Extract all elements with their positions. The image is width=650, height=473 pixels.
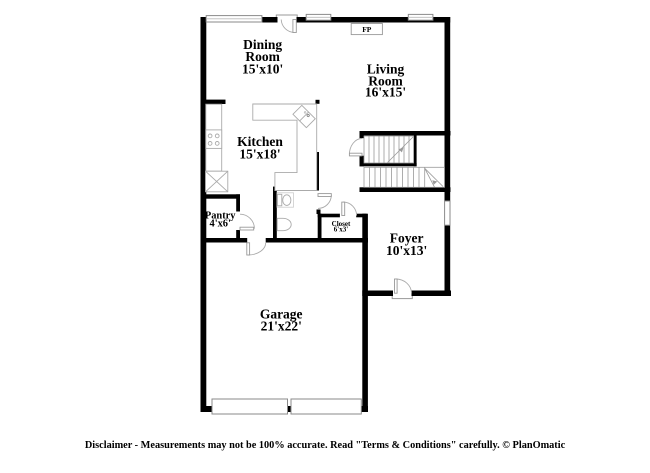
svg-text:16'x15': 16'x15'	[365, 84, 406, 99]
svg-text:Disclaimer - Measurements may: Disclaimer - Measurements may not be 100…	[85, 440, 566, 451]
svg-text:4'x6': 4'x6'	[210, 218, 231, 229]
svg-text:15'x10': 15'x10'	[242, 61, 283, 76]
svg-text:FP: FP	[362, 25, 372, 34]
svg-text:15'x18': 15'x18'	[239, 146, 280, 161]
svg-text:21'x22': 21'x22'	[261, 318, 302, 333]
svg-text:10'x13': 10'x13'	[386, 243, 427, 258]
svg-text:6'x3': 6'x3'	[334, 226, 348, 234]
